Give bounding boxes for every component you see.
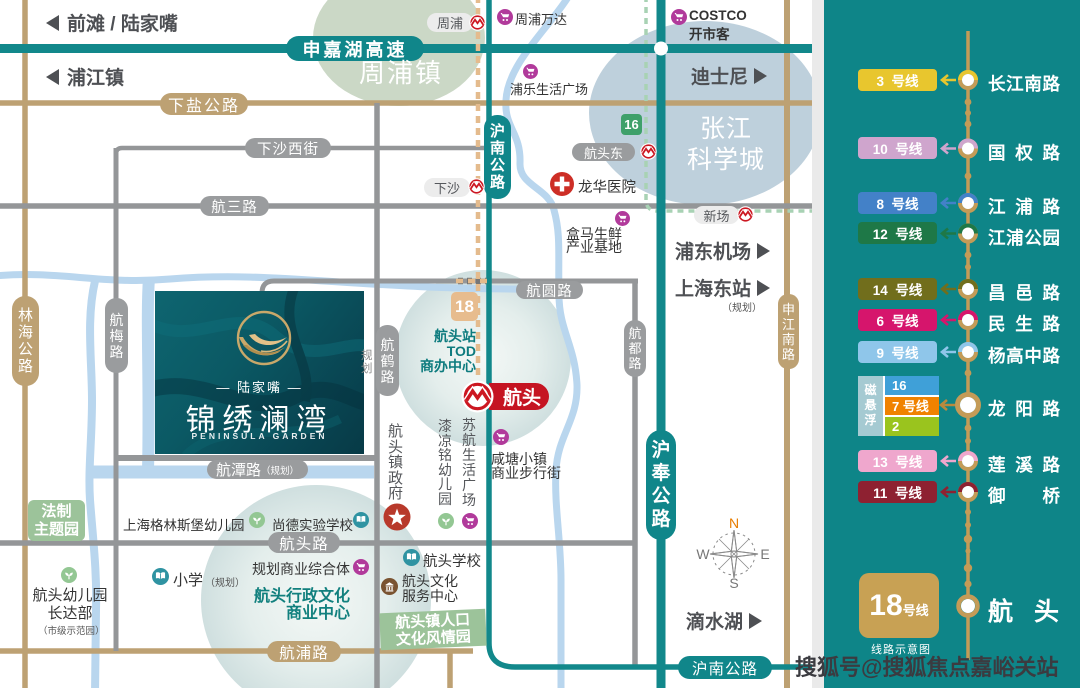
svg-text:W: W: [696, 546, 710, 562]
svg-text:N: N: [729, 515, 739, 531]
svg-text:S: S: [729, 575, 738, 591]
svg-text:E: E: [760, 546, 769, 562]
